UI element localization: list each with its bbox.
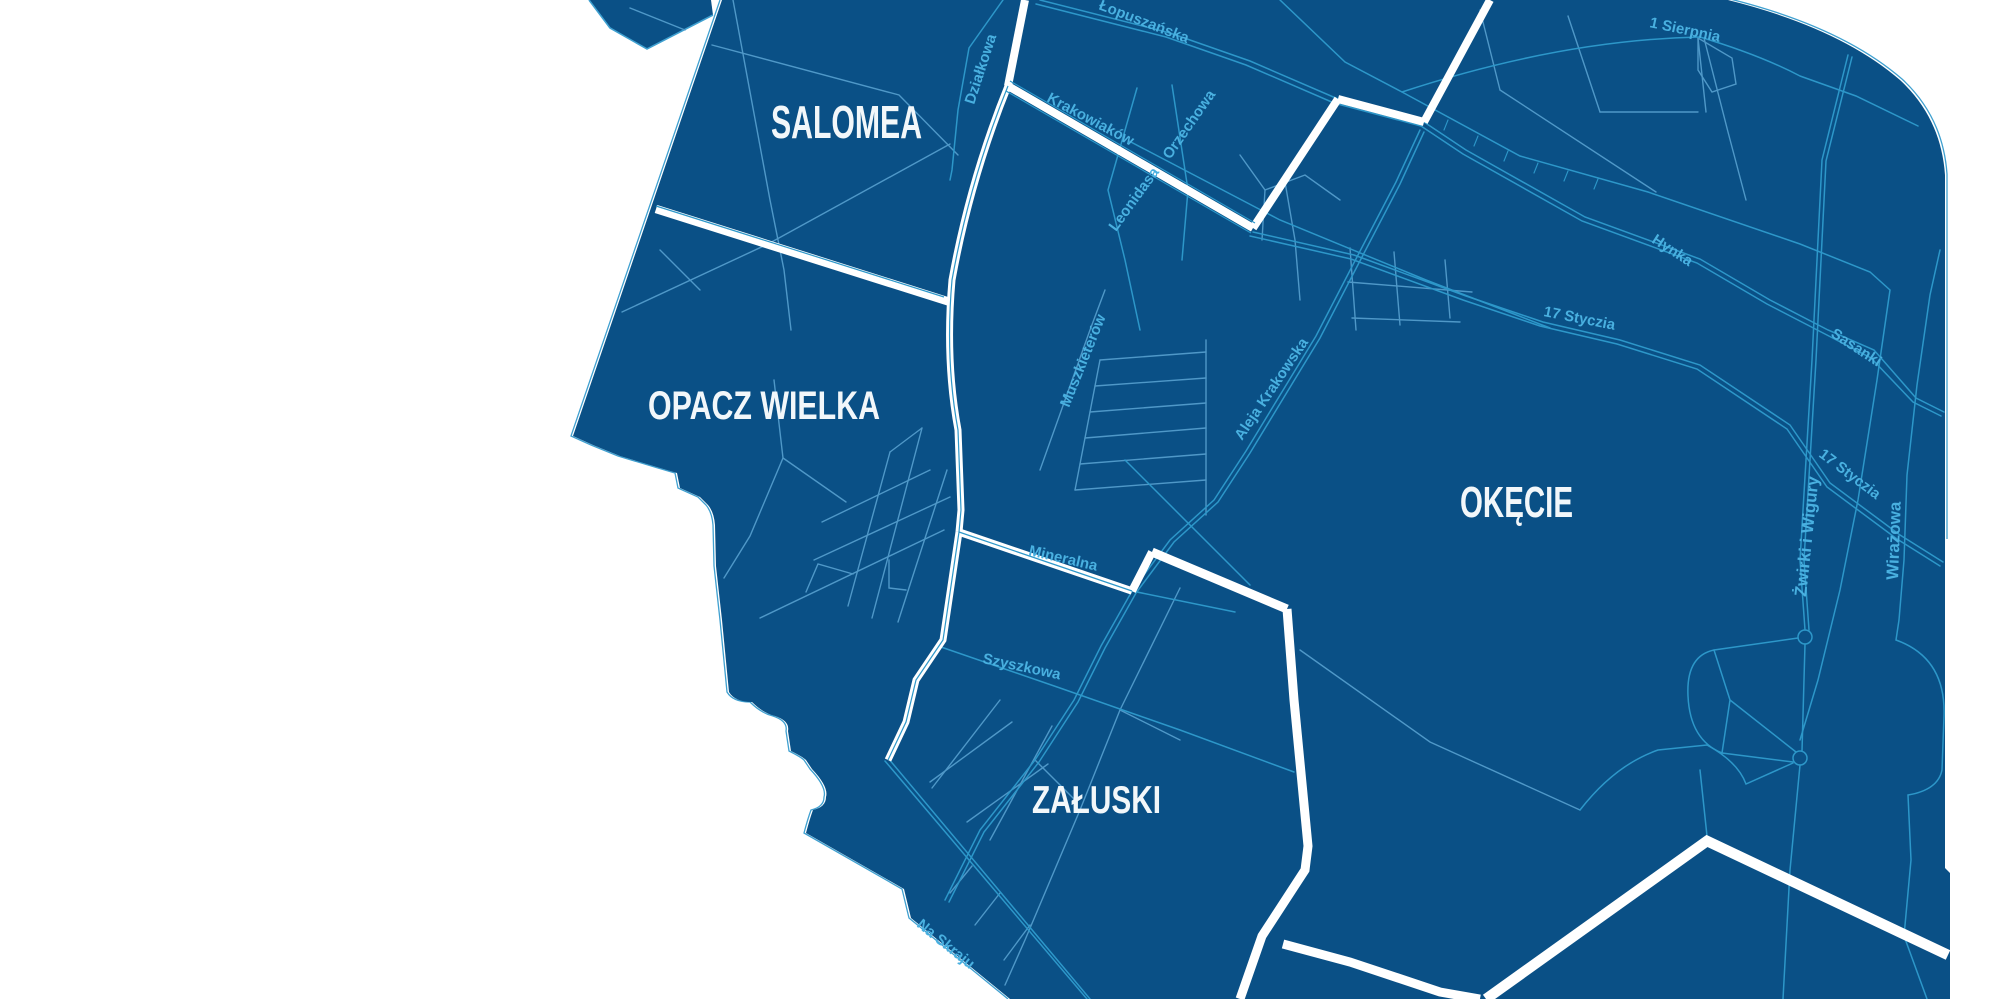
svg-text:ZAŁUSKI: ZAŁUSKI [1032, 779, 1161, 822]
svg-text:SALOMEA: SALOMEA [771, 96, 922, 148]
svg-text:OKĘCIE: OKĘCIE [1460, 478, 1573, 527]
svg-text:OPACZ WIELKA: OPACZ WIELKA [648, 384, 880, 428]
svg-text:Wirażowa: Wirażowa [1883, 501, 1905, 580]
